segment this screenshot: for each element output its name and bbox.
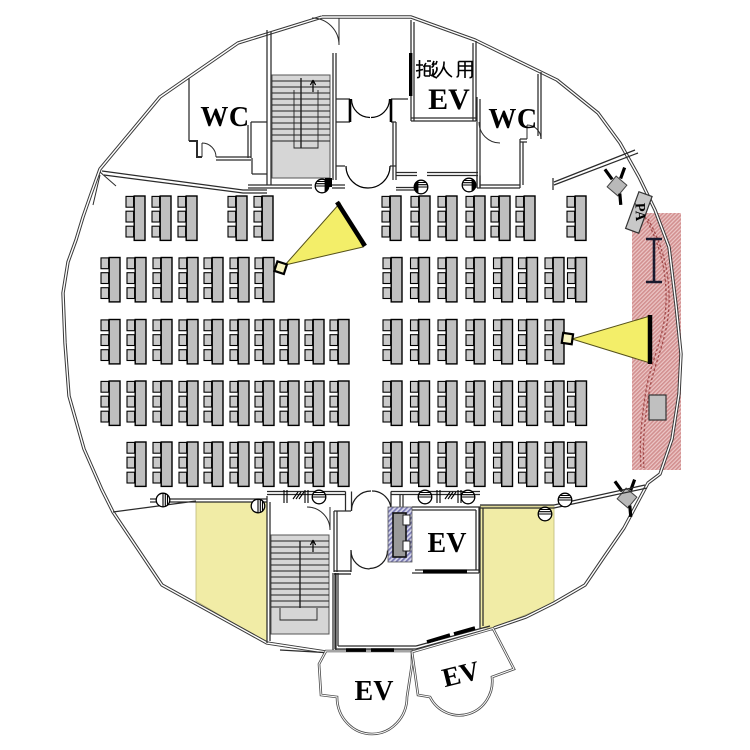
svg-text:EV: EV [428, 528, 467, 559]
svg-text:EV: EV [428, 83, 470, 116]
svg-text:EV: EV [355, 676, 394, 707]
svg-text:PA: PA [631, 203, 648, 222]
svg-text:WC: WC [200, 102, 249, 133]
svg-text:WC: WC [488, 104, 537, 135]
